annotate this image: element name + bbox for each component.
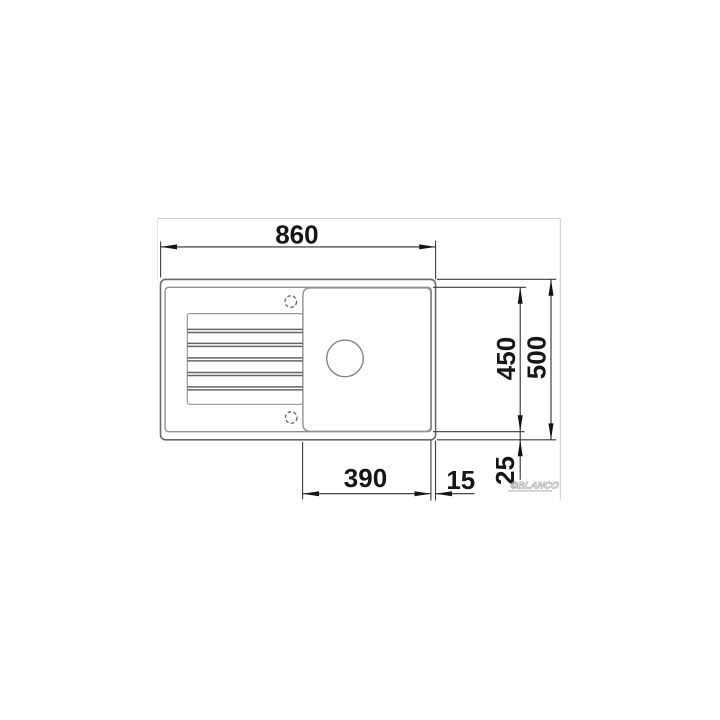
svg-text:15: 15 bbox=[446, 465, 475, 495]
svg-text:©BLANCO: ©BLANCO bbox=[509, 481, 559, 492]
svg-text:450: 450 bbox=[491, 337, 521, 380]
svg-text:860: 860 bbox=[275, 219, 318, 249]
svg-text:500: 500 bbox=[522, 336, 552, 379]
svg-text:390: 390 bbox=[344, 463, 387, 493]
